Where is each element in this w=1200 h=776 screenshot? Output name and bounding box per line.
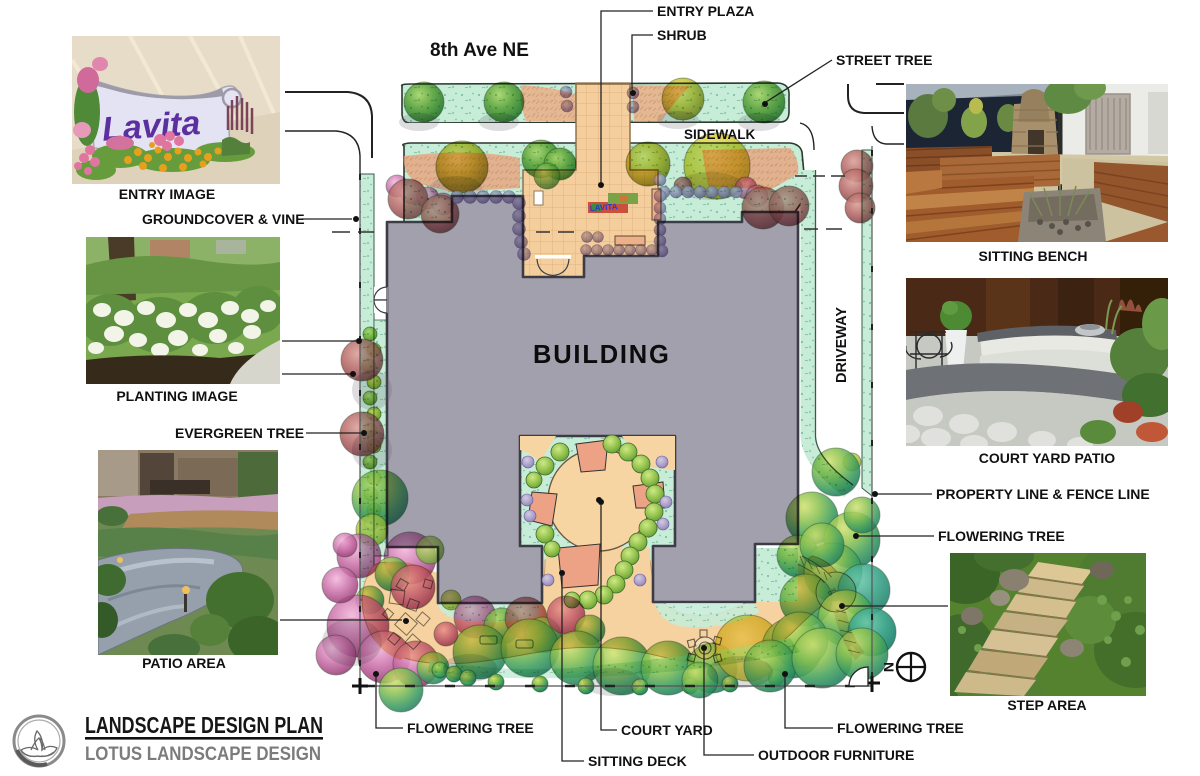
svg-text:FLOWERING TREE: FLOWERING TREE <box>407 720 534 736</box>
svg-text:SITTING BENCH: SITTING BENCH <box>979 248 1088 264</box>
svg-text:COURT YARD: COURT YARD <box>621 722 713 738</box>
svg-text:ENTRY PLAZA: ENTRY PLAZA <box>657 3 754 19</box>
svg-text:PROPERTY LINE & FENCE LINE: PROPERTY LINE & FENCE LINE <box>936 486 1150 502</box>
svg-text:SITTING DECK: SITTING DECK <box>588 753 687 769</box>
svg-text:PATIO AREA: PATIO AREA <box>142 655 226 671</box>
svg-text:PLANTING IMAGE: PLANTING IMAGE <box>116 388 237 404</box>
svg-text:SHRUB: SHRUB <box>657 27 707 43</box>
svg-text:LANDSCAPE DESIGN PLAN: LANDSCAPE DESIGN PLAN <box>85 712 323 738</box>
svg-text:FLOWERING TREE: FLOWERING TREE <box>938 528 1065 544</box>
svg-text:GROUNDCOVER & VINE: GROUNDCOVER & VINE <box>142 211 305 227</box>
svg-text:COURT YARD PATIO: COURT YARD PATIO <box>979 450 1115 466</box>
svg-text:BUILDING: BUILDING <box>533 341 671 369</box>
svg-text:LOTUS LANDSCAPE DESIGN: LOTUS LANDSCAPE DESIGN <box>85 744 321 765</box>
svg-text:EVERGREEN TREE: EVERGREEN TREE <box>175 425 304 441</box>
svg-text:8th Ave NE: 8th Ave NE <box>430 40 529 61</box>
svg-text:FLOWERING TREE: FLOWERING TREE <box>837 720 964 736</box>
svg-text:DRIVEWAY: DRIVEWAY <box>834 307 850 383</box>
svg-text:STEP AREA: STEP AREA <box>1007 697 1086 713</box>
svg-text:SIDEWALK: SIDEWALK <box>684 127 756 142</box>
svg-text:OUTDOOR FURNITURE: OUTDOOR FURNITURE <box>758 747 914 763</box>
svg-text:N: N <box>881 662 897 672</box>
svg-text:STREET TREE: STREET TREE <box>836 52 932 68</box>
svg-text:ENTRY IMAGE: ENTRY IMAGE <box>119 186 215 202</box>
